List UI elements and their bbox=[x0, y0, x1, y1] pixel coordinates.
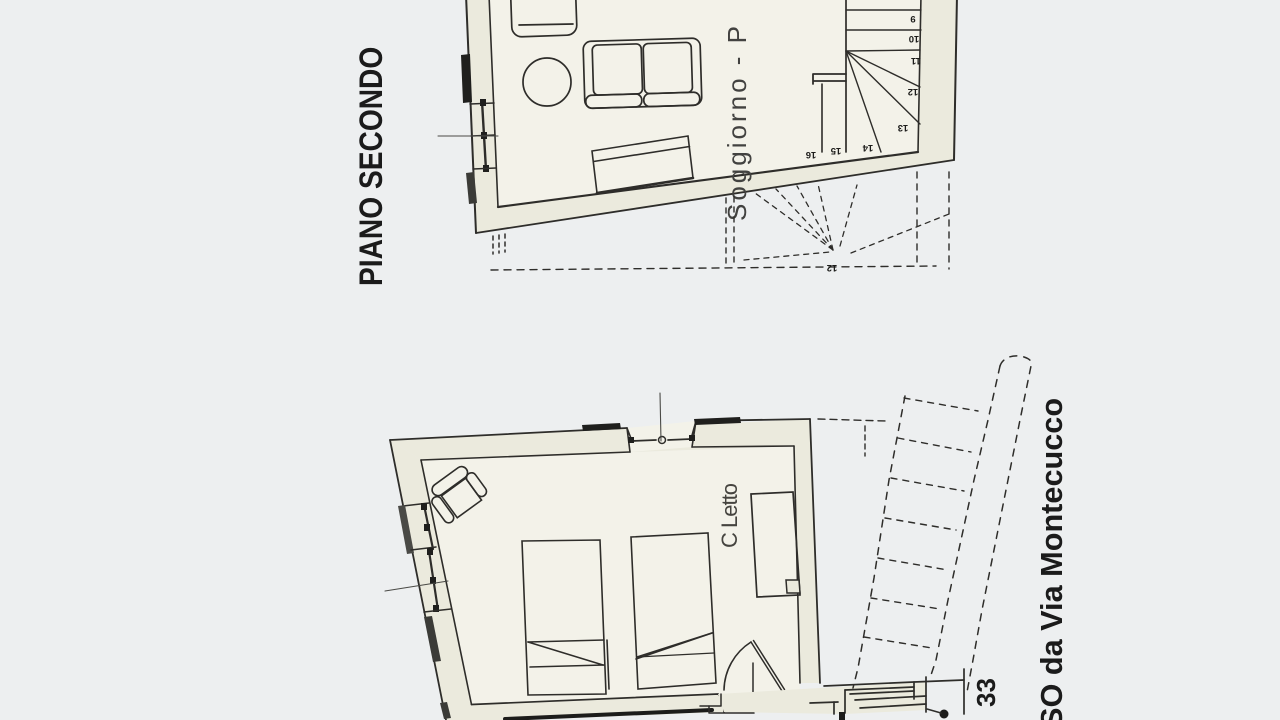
svg-text:12: 12 bbox=[908, 86, 919, 97]
svg-text:11: 11 bbox=[910, 55, 921, 66]
svg-text:Soggiorno - P: Soggiorno - P bbox=[722, 23, 752, 221]
svg-text:13: 13 bbox=[898, 122, 909, 133]
svg-text:10: 10 bbox=[909, 33, 920, 44]
svg-text:12: 12 bbox=[827, 262, 838, 273]
svg-text:14: 14 bbox=[862, 142, 873, 153]
svg-text:PIANO SECONDO: PIANO SECONDO bbox=[354, 47, 389, 286]
svg-text:15: 15 bbox=[830, 145, 841, 156]
svg-text:9: 9 bbox=[910, 13, 915, 24]
svg-text:SO da Via Montecucco: SO da Via Montecucco bbox=[1034, 398, 1069, 720]
svg-text:33: 33 bbox=[971, 678, 1001, 707]
svg-text:C Letto: C Letto bbox=[717, 483, 742, 548]
svg-text:16: 16 bbox=[806, 149, 817, 160]
